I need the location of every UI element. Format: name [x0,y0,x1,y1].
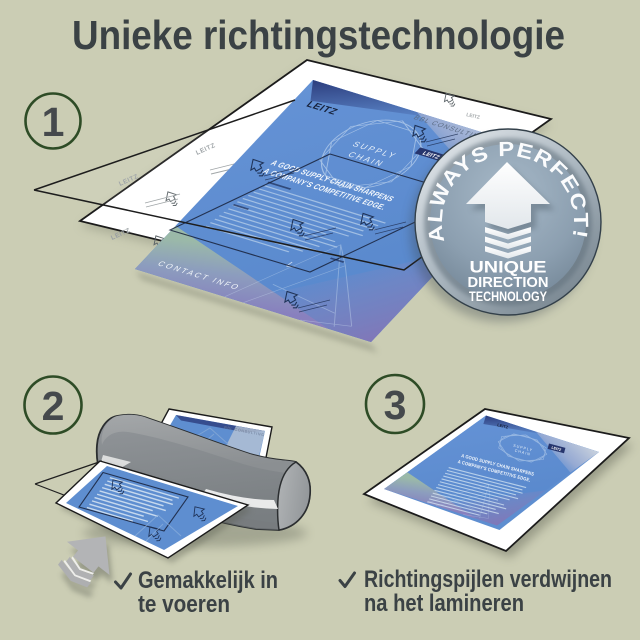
svg-text:1: 1 [42,99,65,145]
svg-text:te voeren: te voeren [138,591,230,618]
svg-text:na het lamineren: na het lamineren [364,590,524,617]
svg-text:2: 2 [42,383,65,429]
svg-text:TECHNOLOGY: TECHNOLOGY [469,289,547,304]
svg-text:Gemakkelijk in: Gemakkelijk in [138,567,278,594]
svg-text:Richtingspijlen verdwijnen: Richtingspijlen verdwijnen [364,566,612,593]
svg-text:Unieke richtingstechnologie: Unieke richtingstechnologie [72,12,565,58]
svg-text:3: 3 [384,382,407,428]
